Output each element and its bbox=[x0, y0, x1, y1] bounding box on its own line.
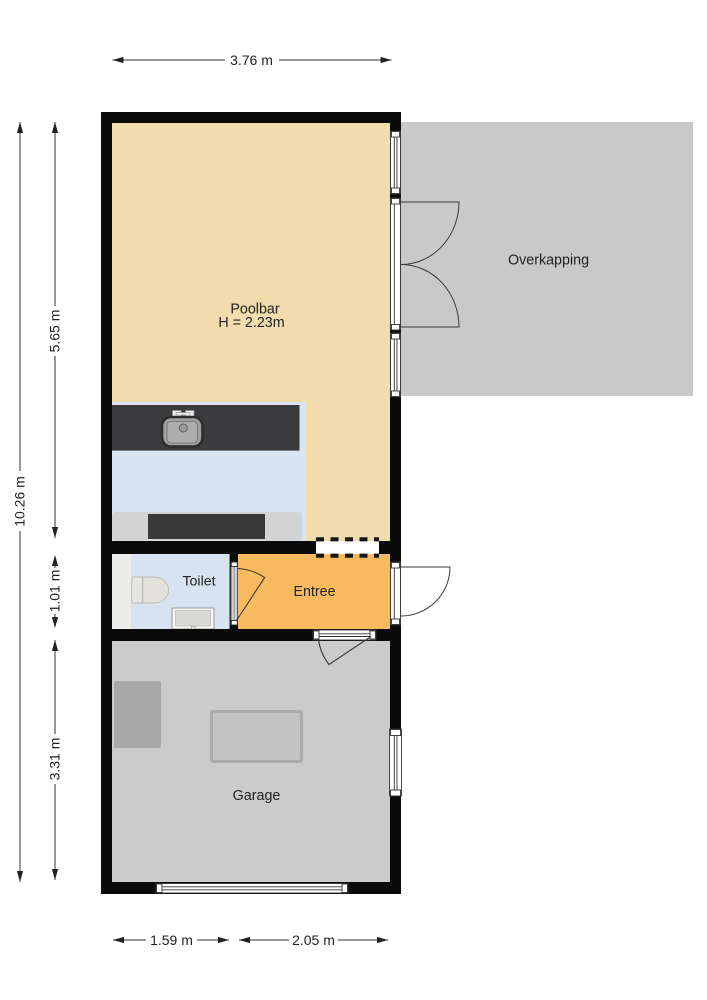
svg-text:Garage: Garage bbox=[233, 788, 281, 804]
svg-text:H = 2.23m: H = 2.23m bbox=[218, 315, 284, 331]
svg-text:Overkapping: Overkapping bbox=[508, 253, 589, 269]
svg-text:3.31 m: 3.31 m bbox=[47, 738, 63, 781]
svg-text:Entree: Entree bbox=[293, 584, 335, 600]
svg-text:1.01 m: 1.01 m bbox=[47, 570, 63, 613]
svg-text:1.59 m: 1.59 m bbox=[150, 932, 193, 948]
svg-text:10.26 m: 10.26 m bbox=[12, 476, 28, 527]
svg-text:2.05 m: 2.05 m bbox=[292, 932, 335, 948]
svg-text:5.65 m: 5.65 m bbox=[47, 310, 63, 353]
svg-text:3.76 m: 3.76 m bbox=[230, 52, 273, 68]
svg-text:Toilet: Toilet bbox=[182, 573, 215, 589]
